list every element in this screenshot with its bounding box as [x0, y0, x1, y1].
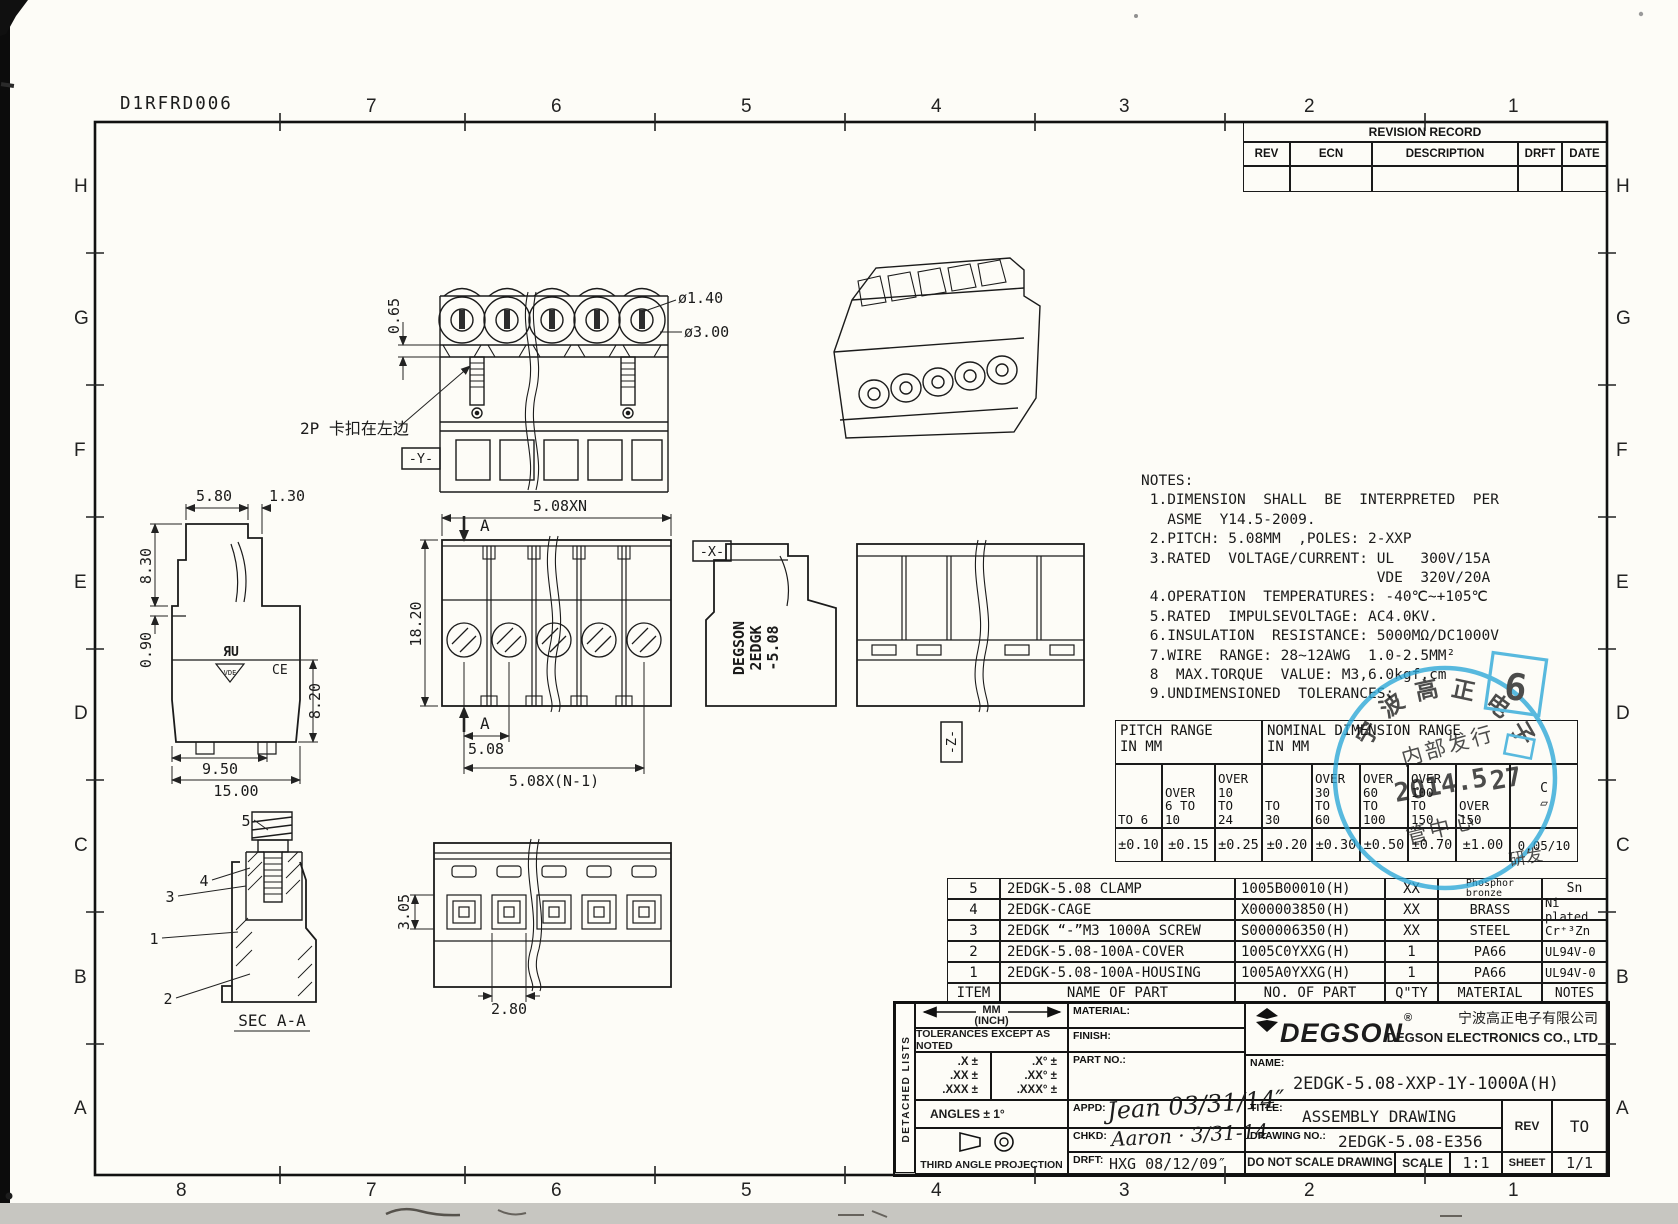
- dim-label-5-08: 5.08: [468, 740, 504, 758]
- part-material: BRASS: [1438, 899, 1542, 920]
- grid-row-right-f: F: [1616, 440, 1628, 462]
- balloon-4: 4: [199, 872, 208, 890]
- grid-col-bottom-1: 1: [1508, 1180, 1519, 1202]
- balloon-1: 1: [149, 930, 158, 948]
- dim-label-0-65: 0.65: [385, 298, 403, 334]
- grid-row-right-g: G: [1616, 308, 1631, 330]
- section-view-label: SEC A-A: [238, 1011, 306, 1030]
- tolerance-col: TO 30: [1262, 764, 1312, 828]
- drawing-code: D1RFRD006: [120, 94, 233, 114]
- dim-label-3-05: 3.05: [395, 894, 413, 930]
- scale-label-cell: SCALE: [1395, 1152, 1450, 1174]
- name-cell: NAME: 2EDGK-5.08-XXP-1Y-1000A(H): [1245, 1055, 1607, 1100]
- parts-header-item: ITEM: [947, 983, 1000, 1003]
- part-item: 3: [947, 920, 1000, 941]
- part-notes: UL94V-0: [1542, 941, 1607, 962]
- rear-view: [857, 540, 1084, 762]
- company-name-cn: 宁波高正电子有限公司: [1458, 1008, 1598, 1028]
- grid-col-bottom-2: 2: [1304, 1180, 1315, 1202]
- tolerance-angular-cell: .X° ± .XX° ± .XXX° ±: [991, 1052, 1068, 1100]
- grid-row-right-d: D: [1616, 703, 1630, 725]
- tolerance-value: ±0.20: [1262, 828, 1312, 862]
- third-angle-projection-icon: [956, 1131, 1026, 1153]
- drft-cell: DRFT: HXG 08/12/09″: [1068, 1152, 1245, 1174]
- dim-label-9-50: 9.50: [202, 760, 238, 778]
- isometric-view: [834, 258, 1040, 438]
- degson-wordmark: DEGSON: [1280, 1018, 1403, 1049]
- grid-col-bottom-6: 6: [551, 1180, 562, 1202]
- parts-header-notes: NOTES: [1542, 983, 1607, 1003]
- grid-row-left-c: C: [74, 835, 88, 857]
- chkd-label: CHKD:: [1073, 1130, 1107, 1142]
- grid-col-bottom-3: 3: [1119, 1180, 1130, 1202]
- note-line: 4.OPERATION TEMPERATURES: -40℃~+105℃: [1141, 588, 1499, 607]
- front-view-mid: [442, 536, 671, 712]
- part-name: 2EDGK-CAGE: [1000, 899, 1235, 920]
- grid-col-bottom-4: 4: [931, 1180, 942, 1202]
- dim-label-1-30: 1.30: [269, 487, 305, 505]
- grid-row-right-e: E: [1616, 572, 1629, 594]
- front-view-mid-dimensions: [420, 514, 731, 774]
- vde-mark: VDE: [224, 669, 237, 677]
- datum-flag-z: -Z-: [944, 730, 960, 754]
- balloon-2: 2: [163, 990, 172, 1008]
- dim-label-dia-1-40: ø1.40: [678, 289, 723, 307]
- dim-label-8-30: 8.30: [137, 548, 155, 584]
- datum-flag-y: -Y-: [409, 451, 433, 467]
- note-line: ASME Y14.5-2009.: [1141, 511, 1499, 530]
- scale-value-cell: 1:1: [1450, 1152, 1502, 1174]
- revision-record-table: REVISION RECORD REV ECN DESCRIPTION DRFT…: [1243, 122, 1607, 192]
- finish-label: FINISH:: [1073, 1030, 1111, 1042]
- clip-note-label: 2P 卡扣在左边: [300, 419, 409, 438]
- brand-text-degson: DEGSON: [730, 621, 748, 675]
- ul-recognized-mark: ЯU: [223, 645, 239, 660]
- tolerance-col-flatness: C ▱: [1510, 764, 1578, 828]
- part-item: 2: [947, 941, 1000, 962]
- section-label-a-top: A: [480, 516, 490, 535]
- drft-value: HXG 08/12/09″: [1109, 1155, 1226, 1173]
- part-notes: Ni plated: [1542, 899, 1607, 920]
- tolerance-value-flatness: 0.05/10: [1510, 828, 1578, 862]
- part-material: PA66: [1438, 962, 1542, 983]
- part-qty: XX: [1385, 899, 1438, 920]
- part-qty: XX: [1385, 878, 1438, 899]
- tolerances-note-cell: TOLERANCES EXCEPT AS NOTED: [915, 1028, 1068, 1052]
- company-name-en: DEGSON ELECTRONICS CO., LTD: [1387, 1030, 1598, 1045]
- angles-cell: ANGLES ± 1°: [915, 1100, 1068, 1128]
- tolerance-col: OVER 10 TO 24: [1215, 764, 1262, 828]
- dim-label-15-00: 15.00: [213, 782, 258, 800]
- finish-cell: FINISH:: [1068, 1028, 1245, 1052]
- note-line: 3.RATED VOLTAGE/CURRENT: UL 300V/15A: [1141, 550, 1499, 569]
- revision-col-rev: REV: [1243, 142, 1290, 166]
- part-name-value: 2EDGK-5.08-XXP-1Y-1000A(H): [1246, 1074, 1606, 1094]
- note-line: 9.UNDIMENSIONED TOLERANCES:: [1141, 685, 1499, 704]
- part-name: 2EDGK-5.08 CLAMP: [1000, 878, 1235, 899]
- grid-row-left-b: B: [74, 967, 87, 989]
- parts-header-name: NAME OF PART: [1000, 983, 1235, 1003]
- grid-col-bottom-5: 5: [741, 1180, 752, 1202]
- bottom-view: [434, 839, 671, 991]
- rev-value-cell: TO: [1552, 1100, 1607, 1152]
- dim-label-0-90: 0.90: [137, 632, 155, 668]
- revision-col-drft: DRFT: [1518, 142, 1562, 166]
- grid-col-bottom-8: 8: [176, 1180, 187, 1202]
- note-line: VDE 320V/20A: [1141, 569, 1499, 588]
- appd-label: APPD:: [1073, 1102, 1106, 1114]
- tolerance-value: ±0.15: [1162, 828, 1215, 862]
- units-inch: (INCH): [916, 1015, 1067, 1027]
- brand-cell: DEGSON ® 宁波高正电子有限公司 DEGSON ELECTRONICS C…: [1245, 1003, 1607, 1055]
- grid-row-left-d: D: [74, 703, 88, 725]
- note-line: 7.WIRE RANGE: 28~12AWG 1.0-2.5MM²: [1141, 647, 1499, 666]
- note-line: 6.INSULATION RESISTANCE: 5000MΩ/DC1000V: [1141, 627, 1499, 646]
- tolerance-linear-cell: .X ± .XX ± .XXX ±: [915, 1052, 991, 1100]
- do-not-scale-cell: DO NOT SCALE DRAWING: [1245, 1152, 1395, 1174]
- front-view-top: [439, 289, 668, 493]
- grid-col-top-1: 1: [1508, 96, 1519, 118]
- dim-label-5-80: 5.80: [196, 487, 232, 505]
- revision-empty-cell: [1562, 166, 1607, 192]
- title-value: ASSEMBLY DRAWING: [1302, 1107, 1456, 1126]
- detached-lists-cell: DETACHED LISTS: [895, 1003, 915, 1173]
- part-no: 1005C0YXXG(H): [1235, 941, 1385, 962]
- projection-label: THIRD ANGLE PROJECTION: [916, 1159, 1067, 1171]
- dim-label-2-80: 2.80: [491, 1000, 527, 1018]
- stamp-badge-number: 6: [1501, 665, 1529, 711]
- part-no: 1005B00010(H): [1235, 878, 1385, 899]
- revision-empty-cell: [1243, 166, 1290, 192]
- brand-text-5-08: -5.08: [764, 625, 782, 670]
- material-cell: MATERIAL:: [1068, 1003, 1245, 1028]
- parts-header-no: NO. OF PART: [1235, 983, 1385, 1003]
- part-notes: UL94V-0: [1542, 962, 1607, 983]
- drawing-no-label: DRAWING NO.:: [1250, 1130, 1326, 1142]
- revision-col-date: DATE: [1562, 142, 1607, 166]
- revision-record-title: REVISION RECORD: [1243, 122, 1607, 142]
- tolerance-col: OVER 100 TO 150: [1408, 764, 1456, 828]
- side-view-brand: [706, 544, 836, 706]
- notes-block: NOTES: 1.DIMENSION SHALL BE INTERPRETED …: [1141, 472, 1499, 705]
- tolerance-value: ±1.00: [1456, 828, 1510, 862]
- grid-col-top-6: 6: [551, 96, 562, 118]
- tolerance-col: TO 6: [1115, 764, 1162, 828]
- dim-label-8-20: 8.20: [306, 683, 324, 719]
- ce-mark: CE: [272, 663, 288, 678]
- part-qty: XX: [1385, 920, 1438, 941]
- parts-list-table: 5 2EDGK-5.08 CLAMP 1005B00010(H) XX Phos…: [947, 878, 1607, 1003]
- rev-label-cell: REV: [1502, 1100, 1552, 1152]
- grid-row-left-h: H: [74, 176, 88, 198]
- grid-col-top-4: 4: [931, 96, 942, 118]
- balloon-3: 3: [165, 888, 174, 906]
- dim-label-5-08xn: 5.08XN: [533, 497, 587, 515]
- part-no-label: PART NO.:: [1073, 1054, 1126, 1066]
- parts-header-qty: Q"TY: [1385, 983, 1438, 1003]
- part-no: 1005A0YXXG(H): [1235, 962, 1385, 983]
- revision-col-ecn: ECN: [1290, 142, 1372, 166]
- degson-registered-mark: ®: [1404, 1012, 1412, 1024]
- degson-diamond-icon: [1256, 1008, 1278, 1032]
- part-qty: 1: [1385, 941, 1438, 962]
- tolerance-value: ±0.10: [1115, 828, 1162, 862]
- tolerance-pitch-header: PITCH RANGE IN MM: [1115, 720, 1262, 764]
- dim-label-dia-3-00: ø3.00: [684, 323, 729, 341]
- part-no: X000003850(H): [1235, 899, 1385, 920]
- tolerance-value: ±0.30: [1312, 828, 1360, 862]
- part-no: S000006350(H): [1235, 920, 1385, 941]
- grid-row-right-a: A: [1616, 1098, 1629, 1120]
- part-item: 4: [947, 899, 1000, 920]
- drawing-no-cell: DRAWING NO.: 2EDGK-5.08-E356: [1245, 1128, 1502, 1152]
- note-line: 2.PITCH: 5.08MM ,POLES: 2-XXP: [1141, 530, 1499, 549]
- dim-label-18-20: 18.20: [407, 601, 425, 646]
- chkd-cell: CHKD: Aaron · 3/31-14: [1068, 1128, 1245, 1152]
- revision-empty-cell: [1290, 166, 1372, 192]
- tolerance-value: ±0.25: [1215, 828, 1262, 862]
- sheet-label-cell: SHEET: [1502, 1152, 1552, 1174]
- side-view-left-dimensions: [150, 504, 318, 784]
- drawing-no-value: 2EDGK-5.08-E356: [1338, 1132, 1483, 1151]
- parts-header-material: MATERIAL: [1438, 983, 1542, 1003]
- drft-label: DRFT:: [1073, 1154, 1103, 1166]
- part-material: PA66: [1438, 941, 1542, 962]
- note-line: 5.RATED IMPULSEVOLTAGE: AC4.0KV.: [1141, 608, 1499, 627]
- part-item: 5: [947, 878, 1000, 899]
- part-qty: 1: [1385, 962, 1438, 983]
- revision-col-description: DESCRIPTION: [1372, 142, 1518, 166]
- part-notes: Cr⁺³Zn: [1542, 920, 1607, 941]
- part-name: 2EDGK-5.08-100A-COVER: [1000, 941, 1235, 962]
- note-line: NOTES:: [1141, 472, 1499, 491]
- grid-row-left-f: F: [74, 440, 86, 462]
- tolerance-col: OVER 6 TO 10: [1162, 764, 1215, 828]
- grid-col-top-5: 5: [741, 96, 752, 118]
- grid-row-left-e: E: [74, 572, 87, 594]
- section-view: [162, 812, 316, 1031]
- grid-row-left-a: A: [74, 1098, 87, 1120]
- datum-flag-x: -X-: [700, 544, 724, 560]
- title-cell: TITLE: ASSEMBLY DRAWING: [1245, 1100, 1502, 1128]
- note-line: 1.DIMENSION SHALL BE INTERPRETED PER: [1141, 491, 1499, 510]
- front-view-top-dimensions: [398, 300, 682, 469]
- projection-cell: THIRD ANGLE PROJECTION: [915, 1128, 1068, 1174]
- tolerance-col: OVER 150: [1456, 764, 1510, 828]
- balloon-5: 5: [241, 812, 250, 830]
- detached-lists-label: DETACHED LISTS: [898, 1004, 916, 1174]
- note-line: 8 MAX.TORQUE VALUE: M3,6.0kgf.cm: [1141, 666, 1499, 685]
- tolerance-col: OVER 30 TO 60: [1312, 764, 1360, 828]
- part-name: 2EDGK “-”M3 1000A SCREW: [1000, 920, 1235, 941]
- grid-col-top-2: 2: [1304, 96, 1315, 118]
- tolerance-nominal-header: NOMINAL DIMENSION RANGE IN MM: [1262, 720, 1578, 764]
- sheet-value-cell: 1/1: [1552, 1152, 1607, 1174]
- units-cell: MM (INCH): [915, 1003, 1068, 1028]
- grid-row-right-b: B: [1616, 967, 1629, 989]
- part-item: 1: [947, 962, 1000, 983]
- material-label: MATERIAL:: [1073, 1005, 1130, 1017]
- grid-row-left-g: G: [74, 308, 89, 330]
- tolerance-table: PITCH RANGE IN MM NOMINAL DIMENSION RANG…: [1115, 720, 1578, 862]
- revision-empty-cell: [1372, 166, 1518, 192]
- section-label-a-bottom: A: [480, 714, 490, 733]
- grid-col-top-7: 7: [366, 96, 377, 118]
- grid-row-right-c: C: [1616, 835, 1630, 857]
- title-label: TITLE:: [1250, 1102, 1283, 1114]
- brand-text-2edgk: 2EDGK: [747, 625, 765, 670]
- tolerance-col: OVER 60 TO 100: [1360, 764, 1408, 828]
- grid-col-top-3: 3: [1119, 96, 1130, 118]
- part-name: 2EDGK-5.08-100A-HOUSING: [1000, 962, 1235, 983]
- side-view-left: [172, 524, 300, 754]
- revision-empty-cell: [1518, 166, 1562, 192]
- dim-label-5-08xn-1: 5.08X(N-1): [509, 772, 599, 790]
- name-label: NAME:: [1250, 1057, 1284, 1069]
- tolerance-value: ±0.70: [1408, 828, 1456, 862]
- engineering-drawing-sheet: D1RFRD006 7 6 5 4 3 2 1 8 7 6 5 4 3 2 1 …: [0, 0, 1678, 1224]
- bottom-view-dimensions: [410, 895, 540, 1002]
- part-material: Phosphor bronze: [1438, 878, 1542, 899]
- part-material: STEEL: [1438, 920, 1542, 941]
- grid-row-right-h: H: [1616, 176, 1630, 198]
- grid-col-bottom-7: 7: [366, 1180, 377, 1202]
- tolerance-value: ±0.50: [1360, 828, 1408, 862]
